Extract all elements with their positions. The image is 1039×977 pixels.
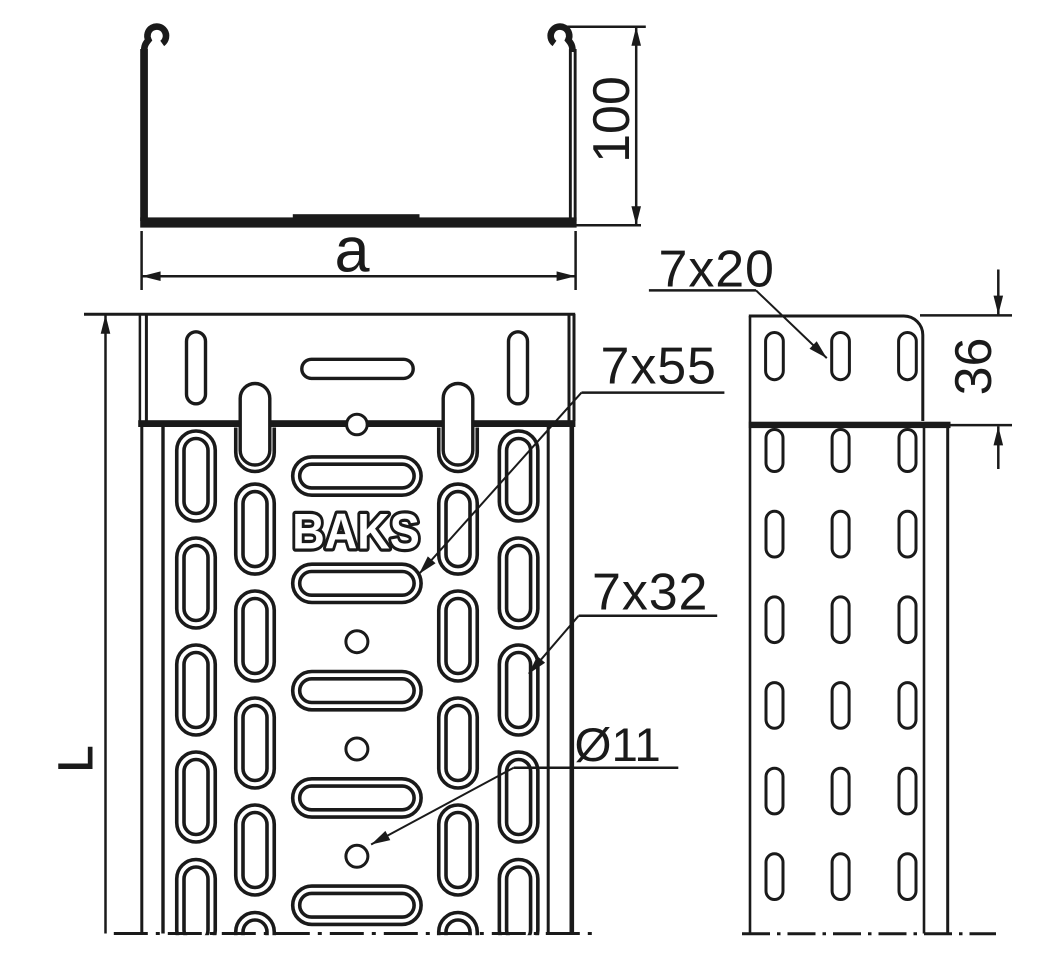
svg-text:L: L bbox=[50, 746, 103, 773]
svg-text:Ø11: Ø11 bbox=[575, 719, 661, 772]
svg-text:7x55: 7x55 bbox=[601, 338, 717, 396]
svg-text:7x32: 7x32 bbox=[592, 564, 708, 622]
svg-text:100: 100 bbox=[583, 76, 641, 163]
svg-text:36: 36 bbox=[945, 338, 1003, 396]
svg-text:BAKS: BAKS bbox=[292, 504, 419, 560]
svg-text:a: a bbox=[334, 216, 370, 286]
